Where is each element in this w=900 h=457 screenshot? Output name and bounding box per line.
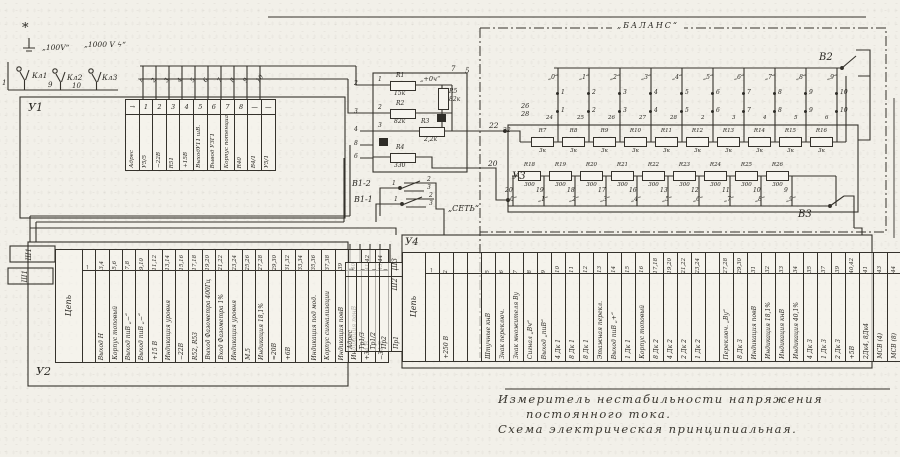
signal-label: Тр1/3 (360, 332, 366, 350)
resistor-body-icon (624, 137, 647, 147)
resistor-name: R3 (421, 119, 429, 125)
contact-number: 9 (809, 107, 813, 114)
b2-position-label: „6“ (734, 74, 765, 81)
resistor-name: R14 (744, 128, 775, 137)
resistor-body-icon (704, 171, 727, 181)
signal-label: 8 Дк 1 (584, 339, 590, 359)
table-column: 14 Выход пиВ „+“ (608, 253, 622, 361)
contact-dot-icon (618, 110, 621, 113)
resistor: R10 3к (620, 128, 651, 157)
table-column: 4 +15В (180, 100, 194, 170)
resistor-name: R9 (589, 128, 620, 137)
circuit-header: Цепь (410, 296, 418, 317)
harness-left-drops (30, 216, 36, 242)
terminal-circle (53, 69, 57, 73)
pin-number: 43 (878, 266, 883, 273)
table-column: 5 Штучные кнВ (482, 253, 496, 361)
pin-number: 35,36 (312, 255, 317, 270)
node-position-row: „0“„1“„2“„3“„4“„5“„6“„7“„8“„9“ (507, 196, 817, 203)
node-position-label: „4“ (631, 196, 662, 203)
wire-number: 7 (451, 66, 455, 73)
pin-number: 33 (780, 266, 785, 273)
signal-label: Адрес (130, 150, 136, 168)
table-column: 2 +250 В (440, 253, 454, 361)
contact-dot-icon (649, 110, 652, 113)
resistor-name: R22 (638, 162, 669, 171)
switch-pin: 2 (429, 193, 433, 199)
table-column: 44 МСВ (8) (888, 253, 900, 361)
contact-number: 4 (654, 107, 658, 114)
b3-switch-icon (830, 196, 862, 235)
label-sh1-a: Ш1 (26, 248, 33, 260)
pin-number: 40,42 (850, 258, 855, 273)
table-column: 5,6 Корпус топовый (110, 250, 123, 362)
b2-contact: 4 (648, 89, 679, 99)
pin-number: 6 (208, 100, 221, 115)
resistor-name: R5 (449, 89, 457, 95)
node-number: 9 (784, 187, 815, 194)
resistor-value: 3к (558, 147, 589, 157)
table-column: 7 Знак множителя Ву (510, 253, 524, 361)
component-block-icon (379, 138, 388, 146)
table-column: 33 Индикация кнВ (776, 253, 790, 361)
node-number: 10 (753, 187, 784, 194)
b2-contacts-top-row: 1 2 3 4 5 6 7 8 9 10 (555, 89, 865, 99)
resistor-name: R20 (576, 162, 607, 171)
terminal-circle (17, 67, 21, 71)
resistor-name: R1 (396, 73, 404, 79)
contact-number: 6 (716, 107, 720, 114)
pin-number: 5 (194, 100, 207, 115)
component-block-icon (437, 114, 446, 122)
rblock-pin: 8 (354, 141, 358, 147)
contact-number: 26 (608, 115, 639, 121)
table-column: 11 8 Дк 1 (566, 253, 580, 361)
pin-number: 21,22 (219, 255, 224, 270)
table-column: 11,12 +15 В (149, 250, 162, 362)
table-column: 3,4 Выход Н (96, 250, 109, 362)
table-column: − Тр1/2 (369, 263, 380, 351)
resistor-body-icon (642, 171, 665, 181)
resistor: R9 3к (589, 128, 620, 157)
label-u1: У1 (28, 102, 43, 113)
table-column (468, 253, 482, 361)
table-column: 15,16 −22В (176, 250, 189, 362)
b2-position-label: „9“ (827, 74, 858, 81)
signal-label: 2Дк4, 8Дк4 (864, 323, 870, 359)
signal-label: Корпус топовый (113, 306, 119, 360)
label-u3: У3 (512, 172, 526, 182)
contact-dot-icon (680, 92, 683, 95)
table-column: 23,24 Индикация уровня (229, 250, 242, 362)
signal-label: −22В (179, 343, 185, 360)
resistor-name: R23 (669, 162, 700, 171)
clamp-1-icon (20, 70, 29, 90)
table-column: 37 1 Дк 3 (818, 253, 832, 361)
label-kl2: Кл2 (67, 74, 82, 82)
rblock-pin: 2 (354, 81, 358, 87)
rblock-tap: 1 (378, 77, 382, 83)
node-number-row: 2019181716131211109 (505, 187, 815, 194)
resistor-name: R11 (651, 128, 682, 137)
table-column: 12 8 Дк 1 (580, 253, 594, 361)
pin-number: 9 (542, 270, 547, 273)
wire-number: 5 (465, 68, 469, 75)
signal-label: Индикация уровня (232, 300, 238, 360)
rblock-pin: 3 (354, 109, 358, 115)
sh1-stub-b (8, 268, 53, 284)
table-column: 35,36 Индикация под мод. (309, 250, 322, 362)
node-position-label: „2“ (569, 196, 600, 203)
table-column: → Адрес (126, 100, 140, 170)
contact-number: 6 (825, 115, 856, 121)
signal-label: Индикация повВ (752, 306, 758, 359)
contact-dot-icon (649, 92, 652, 95)
title-line: Измеритель нестабильности напряжения (498, 392, 823, 407)
table-column: 23,24 1 Дк 2 (692, 253, 706, 361)
contact-dot-icon (556, 110, 559, 113)
signal-label: +6В (286, 347, 292, 360)
table-column: 8 Сигнал „Вч“ (524, 253, 538, 361)
b2-contact: 7 (741, 89, 772, 99)
contact-dot-icon (587, 92, 590, 95)
wire-number: 22 (489, 122, 499, 130)
schematic-page: * „100V“ „1000 V ϟ“ Кл1 Кл2 Кл3 1 9 10 У… (0, 0, 900, 457)
title-line: постоянного тока. (526, 407, 823, 422)
contact-dot-icon (804, 110, 807, 113)
resistor-name: R25 (731, 162, 762, 171)
signal-label: Индикация 18,1% (766, 302, 772, 359)
pin-number: → (126, 100, 139, 115)
b2-contact: 5 (679, 89, 710, 99)
signal-label: Корпус топовый (640, 305, 646, 359)
resistor-body-icon (611, 171, 634, 181)
label-sh1-b: Ш1 (22, 270, 29, 282)
pin-number: 25,26 (246, 255, 251, 270)
resistor-body-icon (735, 171, 758, 181)
label-net: „СЕТЬ“ (448, 205, 479, 213)
contact-number: 27 (639, 115, 670, 121)
pin-number: 11 (570, 266, 575, 273)
node-position-label: „7“ (724, 196, 755, 203)
resistor-value: 2,2к (424, 137, 437, 143)
signal-label: Индикация повВ (339, 307, 345, 360)
signal-label: МСВ (4) (878, 333, 884, 359)
rblock-tap: 3 (378, 123, 382, 129)
table-column: 10 4 Дк 1 (552, 253, 566, 361)
signal-label: Вход Фазометра 1% (219, 294, 225, 360)
contact-dot-icon (835, 92, 838, 95)
resistor-body-icon (580, 171, 603, 181)
wire-number: 22 (503, 128, 511, 134)
table-column: 25,26 М.5 (243, 250, 256, 362)
resistor: R12 3к (682, 128, 713, 157)
b1-left-wires (376, 188, 402, 222)
signal-label: 8 Дк 2 (654, 339, 660, 359)
switch-pin: 3 (429, 201, 433, 207)
table-column: 19,20 4 Дк 2 (664, 253, 678, 361)
pin-number: 6 (500, 270, 505, 273)
table-column: 1 У5/5 (140, 100, 154, 170)
table-column: 34 Индикация 40,1% (790, 253, 804, 361)
b2-position-label: „7“ (765, 74, 796, 81)
b2-contact: 9 (803, 89, 834, 99)
resistor: R11 3к (651, 128, 682, 157)
node-number: 20 (505, 187, 536, 194)
table-column: 27,28 Индикация 18,1% (256, 250, 269, 362)
resistor-value: 3к (620, 147, 651, 157)
resistor-value: 3к (682, 147, 713, 157)
resistor-name: R15 (775, 128, 806, 137)
signal-label: У5/5 (143, 155, 149, 168)
signal-label: ≈20В (272, 343, 278, 360)
contact-number: 3 (623, 107, 627, 114)
table-column: 7,8 Выход пиВ „−“ (123, 250, 136, 362)
signal-label: −22В (157, 152, 163, 168)
pin-number: 12 (584, 266, 589, 273)
contact-number: 2 (592, 107, 596, 114)
pin-symbol: − (380, 263, 390, 277)
b2-position-label: „4“ (672, 74, 703, 81)
terminal-number: 10 (72, 83, 81, 90)
resistor: R7 3к (527, 128, 558, 157)
pin-number: 5,6 (113, 261, 118, 270)
b2-position-label: „1“ (579, 74, 610, 81)
table-column: 37,38 Корпус сигнализации (322, 250, 335, 362)
label-sh3: Ш3 (392, 258, 399, 270)
signal-label: 4 Дк 2 (668, 339, 674, 359)
signal-label: +15 В (153, 341, 159, 360)
node-position-label: „6“ (693, 196, 724, 203)
pin-number: 19,20 (206, 255, 211, 270)
pin-number: 15,16 (180, 255, 185, 270)
contact-number: 10 (840, 89, 848, 96)
pin-number: → (86, 265, 91, 270)
signal-label: 8 Дк 3 (738, 339, 744, 359)
table-column (706, 253, 720, 361)
signal-label: Корпус сигнализации (325, 291, 331, 360)
contact-number: 10 (840, 107, 848, 114)
signal-label: Выход пиВ „−“ (139, 313, 145, 360)
b2-position-label: „8“ (796, 74, 827, 81)
table-column: → (426, 253, 440, 361)
contact-dot-icon (804, 92, 807, 95)
table-column: → Адрес (346, 263, 357, 351)
u1-top-pin-numbers: 12345678910 (137, 73, 268, 80)
table-column: — У5/1 (262, 100, 275, 170)
resistor-value: 15к (394, 91, 405, 97)
pin-number: 32 (766, 266, 771, 273)
signal-label: Выход „пиВ“ (542, 319, 548, 359)
b2-position-label: „2“ (610, 74, 641, 81)
node-number: 19 (536, 187, 567, 194)
signal-label: Индикация уровня (166, 300, 172, 360)
resistor-body-icon (655, 137, 678, 147)
resistor-body-icon (810, 137, 833, 147)
resistor: R15 3к (775, 128, 806, 157)
pin-number: 31 (752, 266, 757, 273)
signal-label: +15В (184, 152, 190, 168)
node-position-label: „9“ (786, 196, 817, 203)
signal-label: Тр1/2 (371, 332, 377, 350)
resistor: R8 3к (558, 128, 589, 157)
pin-number: 33,34 (299, 255, 304, 270)
resistor-body-icon (549, 171, 572, 181)
resistor-body-icon (748, 137, 771, 147)
resistor-name: R21 (607, 162, 638, 171)
switch-pin: 2 (427, 177, 431, 183)
label-balance: „БАЛАНС“ (612, 22, 684, 30)
signal-label: Вывод УЗГ1 (211, 133, 217, 168)
title-line: Схема электрическая принципиальная. (498, 422, 823, 437)
pin-number: 2 (153, 100, 166, 115)
resistor-name: R13 (713, 128, 744, 137)
terminal-circle (89, 69, 93, 73)
terminal-number: 1 (2, 80, 6, 87)
switch-pin: 1 (392, 181, 396, 187)
label-1000v: „1000 V ϟ“ (84, 41, 126, 49)
label-v1-1: В1-1 (354, 196, 373, 204)
signal-label: Корпус потенциальн. (225, 115, 231, 168)
contact-dot-icon (556, 92, 559, 95)
pin-number: 7,8 (126, 261, 131, 270)
node-number: 16 (629, 187, 660, 194)
contact-number: 3 (623, 89, 627, 96)
b2-contacts-mid2-row: 242526272823456 (546, 115, 856, 121)
label-v2: В2 (819, 53, 833, 63)
label-v1-2: В1-2 (352, 180, 371, 188)
contact-number: 25 (577, 115, 608, 121)
resistor-body-icon (673, 171, 696, 181)
contact-dot-icon (835, 110, 838, 113)
switch-pin: 1 (394, 197, 398, 203)
resistor-body-icon (531, 137, 554, 147)
node-position-label: „0“ (507, 196, 538, 203)
signal-label: Сигнал „Вч“ (528, 320, 534, 359)
pin-number: 7 (514, 270, 519, 273)
b2-position-label: „0“ (548, 74, 579, 81)
switch-pin: 3 (427, 185, 431, 191)
pin-number: 8 (235, 100, 248, 115)
pin-number: 19,20 (668, 258, 673, 273)
resistor-value: 3к (713, 147, 744, 157)
table-column: 21,22 2 Дк 2 (678, 253, 692, 361)
resistor-name: R12 (682, 128, 713, 137)
label-u4: У4 (405, 238, 419, 248)
contact-number: 8 (778, 107, 782, 114)
pin-number: → (430, 268, 435, 273)
table-column: − Пр1 (392, 263, 402, 351)
signal-label: Пр2 (382, 336, 388, 349)
b1-2-switch-icon (400, 181, 424, 191)
pin-number: 16 (640, 266, 645, 273)
resistor-name: R24 (700, 162, 731, 171)
signal-label: 2 Дк 2 (682, 339, 688, 359)
wiring-layer (0, 0, 900, 457)
label-sh2: Ш2 (392, 278, 399, 290)
table-column: 9,10 Выход пиВ „−“ (136, 250, 149, 362)
pin-number: 27,28 (724, 258, 729, 273)
clamp-3-icon (92, 72, 101, 90)
table-column: 29,30 8 Дк 3 (734, 253, 748, 361)
resistor-value: 330 (394, 163, 405, 169)
pin-number: 29,30 (738, 258, 743, 273)
signal-label: Индикация кнВ (780, 309, 786, 359)
pin-number: 8 (528, 270, 533, 273)
title-block: Измеритель нестабильности напряжения пос… (498, 392, 823, 437)
contact-number: 1 (561, 107, 565, 114)
signal-label: 8 Дк 1 (570, 339, 576, 359)
address-table: → Адрес − Тр1/3 − Тр1/2 − Пр2 − Пр1 (345, 262, 403, 352)
table-column: 41 2Дк4, 8Дк4 (860, 253, 874, 361)
signal-label: +250 В (444, 336, 450, 359)
pin-number: 1 (140, 100, 153, 115)
resistor-name: R26 (762, 162, 793, 171)
b2-contact: 2 (586, 89, 617, 99)
resistor: R14 3к (744, 128, 775, 157)
contact-number: 5 (685, 107, 689, 114)
signal-label: 2 Дк 3 (836, 339, 842, 359)
resistor-name: R4 (396, 145, 404, 151)
resistor-body-icon (717, 137, 740, 147)
contact-number: 24 (546, 115, 577, 121)
resistor-r5 (438, 88, 449, 110)
wire-number: 26 (521, 103, 529, 110)
table-column: → (83, 250, 96, 362)
pin-number: 2 (444, 270, 449, 273)
table-column: 32 Индикация 18,1% (762, 253, 776, 361)
b2-position-row: „0“„1“„2“„3“„4“„5“„6“„7“„8“„9“ (548, 74, 858, 81)
pin-symbol: − (369, 263, 379, 277)
table-column: 3 R51 (167, 100, 181, 170)
node-number: 17 (598, 187, 629, 194)
resistor-name: R7 (527, 128, 558, 137)
b1-1-switch-icon (402, 197, 426, 207)
table-column: 31 Индикация повВ (748, 253, 762, 361)
table-column: 2 −22В (153, 100, 167, 170)
signal-label: Переключ. „Ву“ (724, 309, 730, 359)
signal-label: Выход Н (99, 333, 105, 360)
terminal-number: 9 (48, 82, 52, 89)
contact-number: 5 (685, 89, 689, 96)
pin-number: 3,4 (100, 261, 105, 270)
pin-number: 35 (808, 266, 813, 273)
table-column: 31,32 +6В (282, 250, 295, 362)
label-100v: „100V“ (42, 44, 69, 52)
clamp-2-icon (56, 72, 65, 90)
circuit-header: Цепь (65, 295, 73, 316)
contact-number: 9 (809, 89, 813, 96)
signal-label: Адрес (348, 330, 354, 349)
table-column: 7 Корпус потенциальн. (221, 100, 235, 170)
resistor-body-icon (686, 137, 709, 147)
resistor-value: 3к (651, 147, 682, 157)
resistor-value: 3к (744, 147, 775, 157)
rblock-pin: 6 (354, 154, 358, 160)
u1-pin-table: → Адрес 1 У5/5 2 −22В 3 R51 4 +15В 5 Вых… (125, 99, 276, 171)
contact-number: 7 (747, 89, 751, 96)
contact-number: 8 (778, 89, 782, 96)
pin-number: 9,10 (140, 258, 145, 270)
r-block-pin-stubs (360, 85, 373, 158)
signal-label: Выход пиВ „−“ (126, 313, 132, 360)
resistor-value: 82к (394, 119, 405, 125)
resistor-name: R19 (545, 162, 576, 171)
pin-number: 3 (167, 100, 180, 115)
node-position-label: „3“ (600, 196, 631, 203)
contact-dot-icon (742, 92, 745, 95)
pin-number: 29,30 (273, 255, 278, 270)
